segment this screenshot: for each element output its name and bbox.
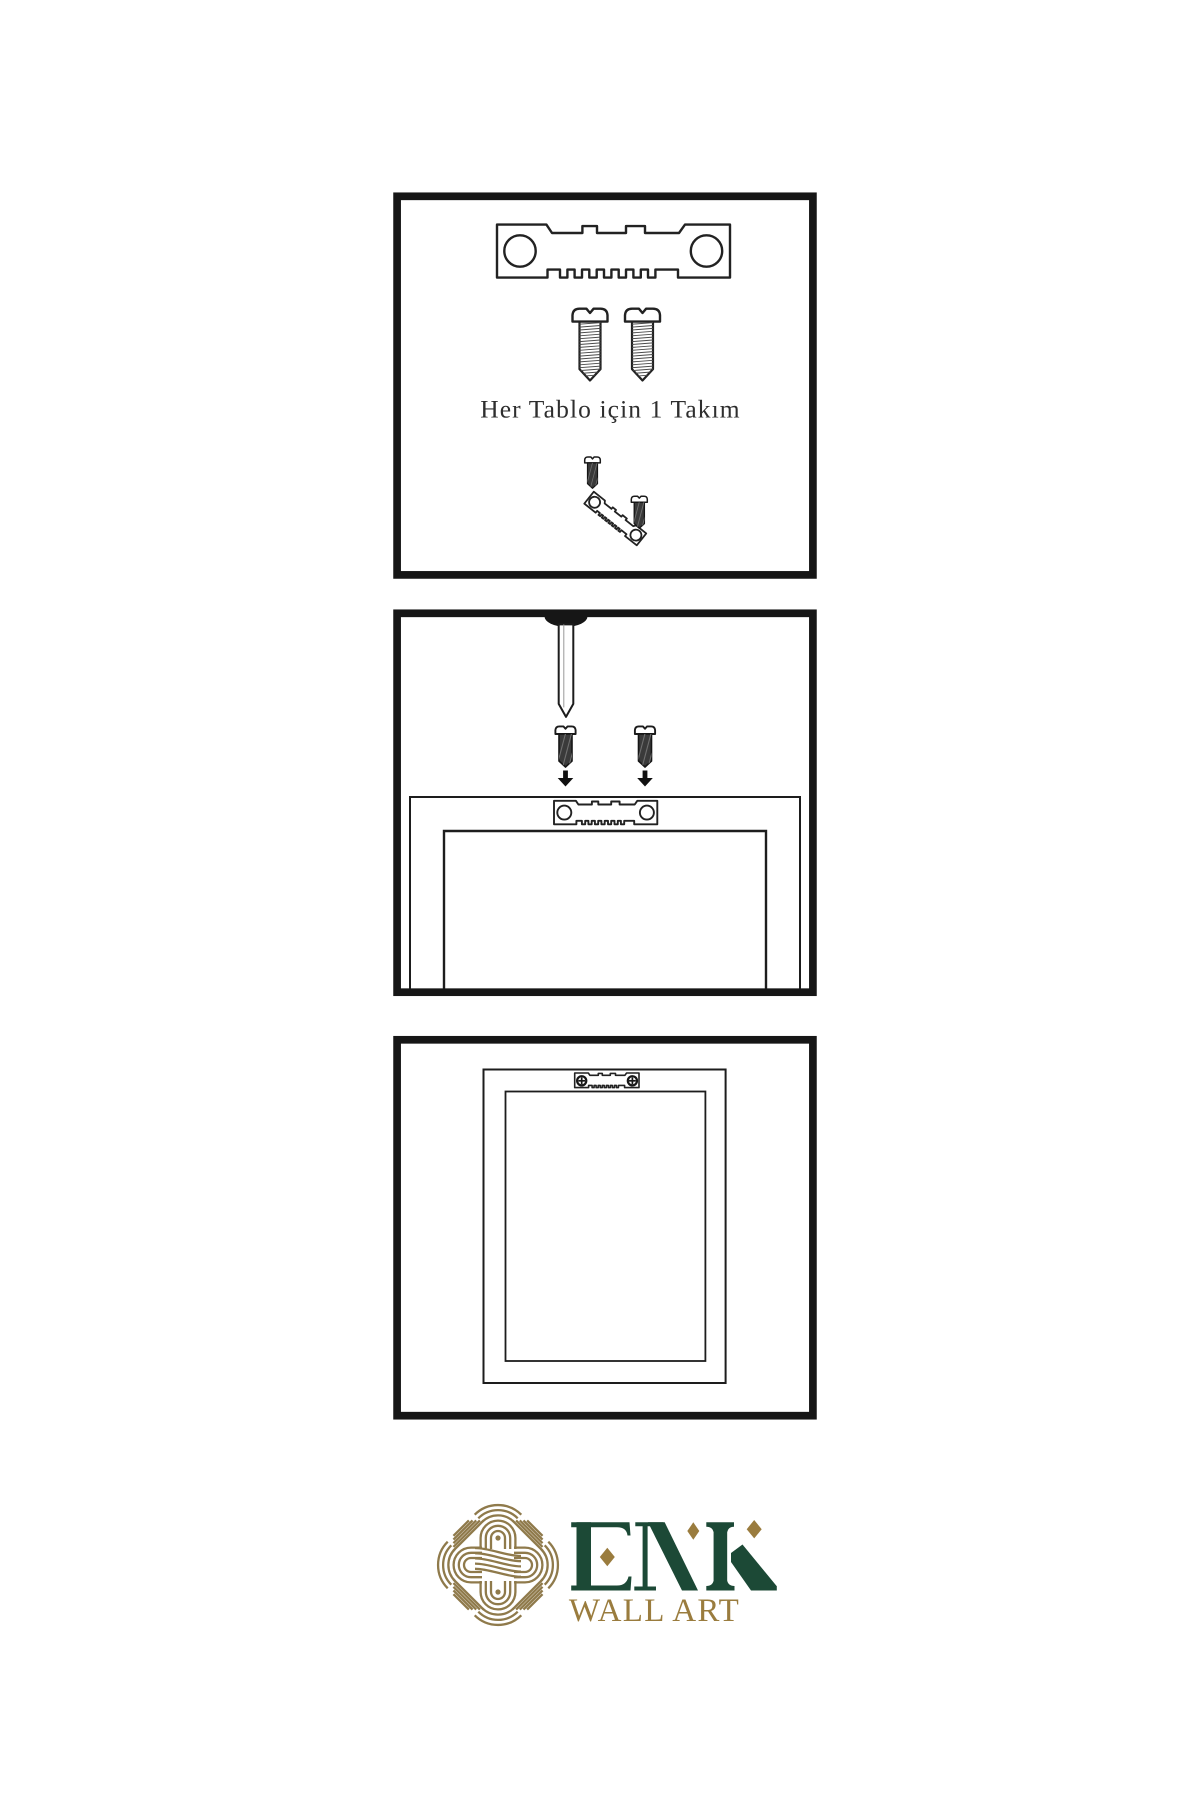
svg-text:WALL ART: WALL ART bbox=[569, 1593, 740, 1629]
svg-text:Her Tablo için 1 Takım: Her Tablo için 1 Takım bbox=[480, 395, 740, 424]
